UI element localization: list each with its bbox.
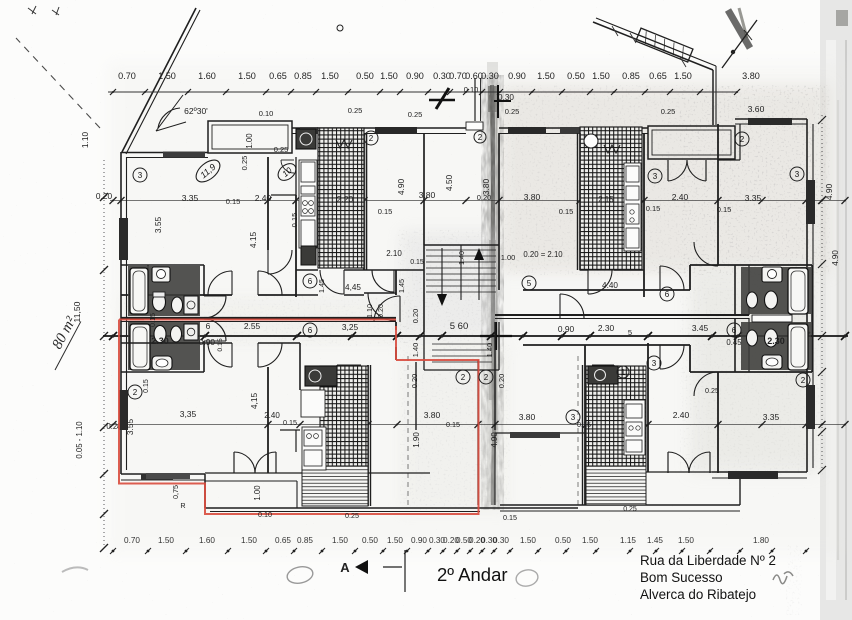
svg-text:5: 5 (628, 328, 632, 337)
svg-text:0.90: 0.90 (199, 338, 215, 347)
svg-text:0.25: 0.25 (345, 511, 359, 520)
svg-text:5: 5 (527, 279, 532, 288)
svg-text:1.50: 1.50 (238, 71, 256, 81)
svg-text:0.15: 0.15 (290, 213, 299, 228)
svg-text:0.90: 0.90 (411, 536, 427, 545)
svg-text:1.80: 1.80 (753, 536, 769, 545)
svg-text:0.15: 0.15 (217, 338, 224, 351)
svg-text:4.40: 4.40 (602, 281, 618, 290)
svg-text:2.20: 2.20 (337, 194, 354, 204)
svg-text:0.50: 0.50 (362, 536, 378, 545)
svg-text:0.25: 0.25 (505, 107, 520, 116)
svg-text:1.50: 1.50 (380, 71, 398, 81)
svg-text:2.30: 2.30 (151, 336, 169, 346)
svg-text:0.25: 0.25 (274, 145, 289, 154)
svg-text:0.15: 0.15 (446, 420, 460, 429)
svg-text:0.25: 0.25 (408, 110, 423, 119)
svg-text:1: 1 (621, 368, 626, 377)
svg-text:0.20 = 2.10: 0.20 = 2.10 (523, 250, 563, 259)
svg-text:3: 3 (653, 172, 658, 181)
svg-text:0.50: 0.50 (555, 536, 571, 545)
svg-text:3.80: 3.80 (419, 190, 436, 200)
svg-text:2.40: 2.40 (255, 193, 272, 203)
svg-text:3,25: 3,25 (342, 322, 359, 332)
svg-text:0.90: 0.90 (406, 71, 424, 81)
svg-text:0.65: 0.65 (649, 71, 667, 81)
svg-text:1.40: 1.40 (457, 251, 466, 265)
svg-text:1.50: 1.50 (387, 536, 403, 545)
svg-text:0.30: 0.30 (481, 71, 499, 81)
svg-text:0.25: 0.25 (240, 156, 249, 171)
svg-text:6: 6 (308, 326, 313, 335)
svg-text:1.50: 1.50 (674, 71, 692, 81)
svg-text:Rua da Liberdade Nº 2: Rua da Liberdade Nº 2 (640, 553, 776, 568)
svg-text:4.90: 4.90 (396, 179, 406, 196)
svg-text:0.05 - 1.10: 0.05 - 1.10 (75, 421, 84, 459)
svg-text:2: 2 (801, 376, 806, 385)
svg-text:3.60: 3.60 (748, 104, 765, 114)
svg-text:1.50: 1.50 (582, 536, 598, 545)
svg-text:1.50: 1.50 (678, 536, 694, 545)
svg-text:3,35: 3,35 (180, 409, 197, 419)
svg-text:0.50: 0.50 (356, 71, 374, 81)
svg-text:1.40: 1.40 (411, 343, 420, 357)
svg-text:1.15: 1.15 (620, 536, 636, 545)
svg-text:1.50: 1.50 (158, 71, 176, 81)
svg-text:0.90: 0.90 (558, 324, 575, 334)
svg-text:3.55: 3.55 (125, 419, 135, 436)
svg-text:2: 2 (740, 135, 745, 144)
svg-text:3.35: 3.35 (182, 193, 199, 203)
svg-text:0.10: 0.10 (258, 510, 272, 519)
svg-text:1.45: 1.45 (397, 279, 406, 293)
svg-text:0.20: 0.20 (411, 309, 420, 323)
svg-text:0.25: 0.25 (661, 107, 676, 116)
svg-text:R: R (180, 501, 185, 510)
svg-text:0.85: 0.85 (294, 71, 312, 81)
svg-text:2.15: 2.15 (598, 195, 614, 204)
svg-text:1.50: 1.50 (520, 536, 536, 545)
svg-text:1.50: 1.50 (158, 536, 174, 545)
svg-text:0.25: 0.25 (348, 106, 363, 115)
svg-text:0.15: 0.15 (410, 259, 424, 266)
svg-text:0.50: 0.50 (567, 71, 585, 81)
svg-text:1.40: 1.40 (485, 343, 494, 357)
svg-text:4.15: 4.15 (248, 232, 258, 249)
svg-text:0.15: 0.15 (226, 197, 241, 206)
svg-text:0.15: 0.15 (378, 207, 393, 216)
svg-text:6: 6 (206, 321, 211, 331)
svg-text:2.40: 2.40 (673, 410, 690, 420)
svg-text:62º30': 62º30' (184, 106, 208, 116)
svg-text:1.50: 1.50 (592, 71, 610, 81)
svg-text:1.10: 1.10 (80, 132, 90, 149)
svg-text:0.20: 0.20 (96, 191, 113, 201)
svg-text:6: 6 (308, 277, 313, 286)
svg-text:4.50: 4.50 (444, 175, 454, 192)
svg-text:0.25: 0.25 (623, 506, 637, 513)
svg-text:2.30: 2.30 (598, 323, 615, 333)
svg-text:0.20: 0.20 (410, 374, 419, 388)
svg-text:5 60: 5 60 (450, 321, 469, 332)
svg-text:1.50: 1.50 (241, 536, 257, 545)
svg-text:0.20: 0.20 (497, 374, 506, 388)
svg-text:0.85: 0.85 (297, 536, 313, 545)
svg-text:1.50: 1.50 (332, 536, 348, 545)
svg-text:3.80: 3.80 (519, 412, 536, 422)
svg-text:0.10: 0.10 (464, 85, 479, 94)
svg-text:3.80: 3.80 (524, 192, 541, 202)
svg-text:3: 3 (795, 170, 800, 179)
svg-text:3.80: 3.80 (481, 179, 491, 196)
svg-text:2: 2 (484, 373, 489, 382)
svg-text:0.65: 0.65 (269, 71, 287, 81)
svg-text:1.10: 1.10 (365, 304, 374, 318)
svg-text:3: 3 (138, 171, 143, 180)
svg-text:3.55: 3.55 (153, 217, 163, 234)
svg-text:2.30: 2.30 (767, 336, 785, 346)
svg-text:0.15: 0.15 (143, 379, 150, 393)
svg-text:0.30: 0.30 (493, 536, 509, 545)
svg-text:4,15: 4,15 (249, 393, 259, 410)
svg-text:0.15: 0.15 (646, 204, 661, 213)
svg-text:3.80: 3.80 (424, 410, 441, 420)
svg-text:6: 6 (665, 290, 670, 299)
svg-text:4.90: 4.90 (824, 184, 834, 201)
svg-text:3.45: 3.45 (692, 323, 709, 333)
svg-text:1.00: 1.00 (253, 485, 262, 501)
svg-text:3.35: 3.35 (763, 412, 780, 422)
svg-text:1.45: 1.45 (317, 279, 326, 293)
svg-text:1.50: 1.50 (321, 71, 339, 81)
svg-text:0.15: 0.15 (503, 513, 517, 522)
svg-text:0.15: 0.15 (559, 207, 574, 216)
svg-text:2.40: 2.40 (672, 192, 689, 202)
svg-text:0.65: 0.65 (275, 536, 291, 545)
svg-text:2º Andar: 2º Andar (437, 564, 508, 585)
svg-text:3: 3 (571, 413, 576, 422)
svg-text:4.90: 4.90 (831, 250, 840, 266)
svg-text:0.90: 0.90 (508, 71, 526, 81)
svg-text:1.50: 1.50 (537, 71, 555, 81)
svg-text:3.35: 3.35 (745, 193, 762, 203)
svg-text:0.15: 0.15 (148, 313, 157, 327)
svg-text:0.70: 0.70 (124, 536, 140, 545)
svg-text:3: 3 (652, 359, 657, 368)
svg-text:1.60: 1.60 (198, 71, 216, 81)
svg-text:2: 2 (478, 133, 483, 142)
svg-text:A: A (340, 560, 350, 575)
svg-text:4.90: 4.90 (490, 432, 499, 448)
svg-text:1.90: 1.90 (412, 432, 421, 448)
svg-text:Alverca do Ribatejo: Alverca do Ribatejo (640, 587, 756, 602)
svg-text:0.85: 0.85 (622, 71, 640, 81)
svg-text:0.20: 0.20 (376, 304, 385, 318)
svg-text:2: 2 (133, 388, 138, 397)
svg-text:3.80: 3.80 (742, 71, 760, 81)
svg-text:0.10: 0.10 (259, 109, 274, 118)
svg-text:2: 2 (461, 373, 466, 382)
svg-text:1.45: 1.45 (647, 536, 663, 545)
svg-text:Bom Sucesso: Bom Sucesso (640, 570, 723, 585)
svg-text:0,75: 0,75 (171, 485, 180, 499)
svg-text:0.45: 0.45 (726, 338, 742, 347)
svg-text:0.25: 0.25 (705, 386, 719, 395)
svg-text:1.00: 1.00 (501, 253, 516, 262)
svg-text:0.70: 0.70 (118, 71, 136, 81)
svg-text:0.15: 0.15 (283, 418, 297, 427)
svg-text:2.55: 2.55 (244, 321, 261, 331)
svg-text:1.00: 1.00 (245, 133, 254, 149)
svg-text:2.40: 2.40 (264, 411, 280, 420)
svg-text:2.10: 2.10 (386, 249, 402, 258)
svg-text:0.15: 0.15 (717, 205, 732, 214)
svg-text:2: 2 (369, 134, 374, 143)
svg-text:4,45: 4,45 (345, 283, 361, 292)
svg-text:1.60: 1.60 (199, 536, 215, 545)
svg-text:6: 6 (732, 326, 737, 335)
